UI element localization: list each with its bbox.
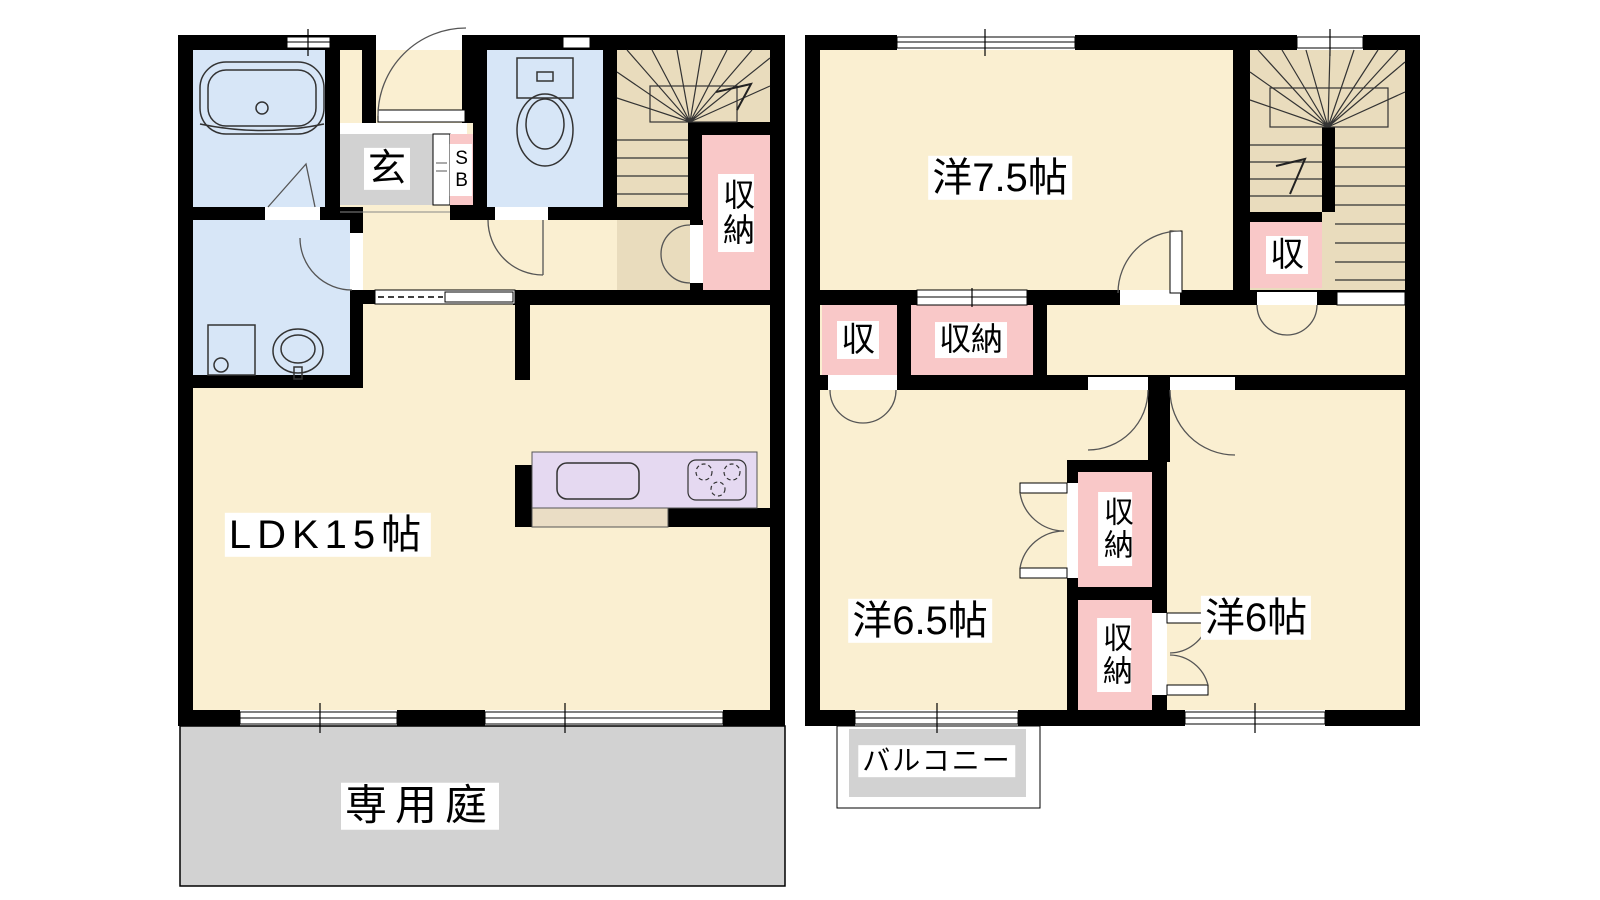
room-6-5-label: 洋6.5帖 bbox=[848, 599, 992, 643]
stairs-closet-label: 収 bbox=[1266, 236, 1308, 274]
shoe-box-label: SB bbox=[450, 144, 472, 196]
room-6-label: 洋6帖 bbox=[1201, 596, 1311, 640]
entrance-door bbox=[378, 110, 465, 122]
closet-upper-label: 収納 bbox=[1098, 492, 1132, 566]
floor-plan-drawing bbox=[0, 0, 1600, 900]
closet-top-label: 収納 bbox=[935, 322, 1007, 358]
closet-lower-label: 収納 bbox=[1097, 618, 1131, 692]
closet1-label: 収納 bbox=[718, 174, 754, 252]
entrance-label: 玄 bbox=[364, 148, 410, 190]
floor1-plan bbox=[178, 28, 785, 886]
closet-small-label: 収 bbox=[837, 321, 879, 359]
floor-plan-canvas: 玄 SB 収納 LDK15帖 専用庭 洋7.5帖 収 収 収納 洋6.5帖 収納… bbox=[0, 0, 1600, 900]
garden-label: 専用庭 bbox=[341, 783, 499, 830]
ldk-label: LDK15帖 bbox=[225, 513, 431, 557]
toilet-area bbox=[487, 50, 603, 207]
bathroom-area bbox=[193, 50, 325, 207]
balcony-label: バルコニー bbox=[858, 745, 1015, 777]
room-7-5-label: 洋7.5帖 bbox=[928, 156, 1072, 200]
room75-door bbox=[1170, 231, 1182, 293]
washroom-area bbox=[193, 220, 350, 375]
